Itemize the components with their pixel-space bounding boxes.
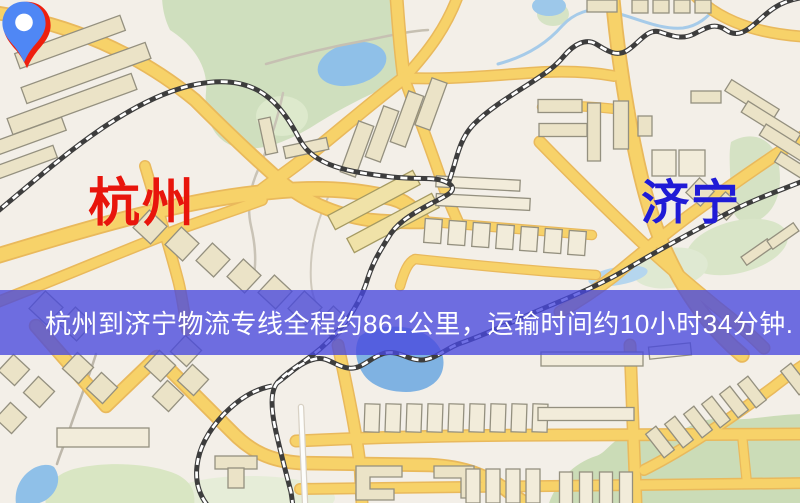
map-graphics	[0, 0, 800, 503]
origin-city-label: 杭州	[88, 178, 196, 230]
route-summary-text: 杭州到济宁物流专线全程约861公里，运输时间约10小时34分钟.	[0, 304, 793, 341]
blue-location-pin-icon[interactable]	[0, 0, 48, 64]
white-road	[301, 407, 305, 503]
map-canvas[interactable]: 杭州 济宁 杭州到济宁物流专线全程约861公里，运输时间约10小时34分钟.	[0, 0, 800, 503]
route-info-banner: 杭州到济宁物流专线全程约861公里，运输时间约10小时34分钟.	[0, 290, 800, 355]
destination-city-label: 济宁	[641, 180, 741, 228]
